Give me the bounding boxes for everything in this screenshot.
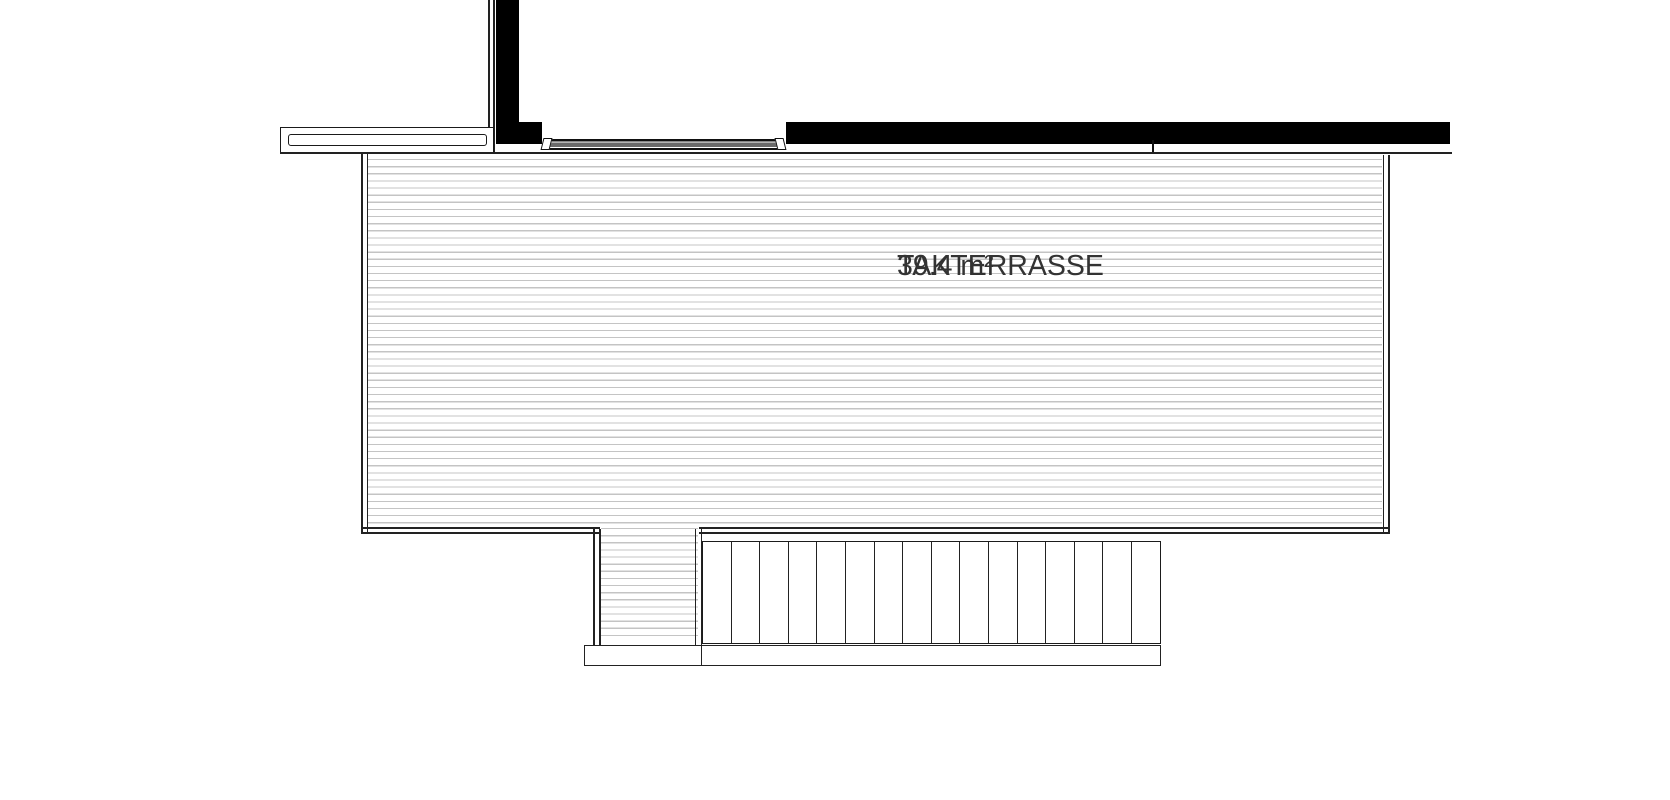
terrace-deck-hatch	[368, 159, 1382, 526]
stair-tread	[903, 542, 932, 643]
terrace-right-edge-line	[1388, 155, 1390, 533]
walkway-strip-edge-line	[695, 529, 697, 646]
exterior-wall-top	[786, 122, 1450, 144]
room-area-label: 39.4 m²	[897, 250, 994, 283]
stair-tread	[846, 542, 875, 643]
exterior-wall-corner	[518, 122, 542, 144]
stair-tread	[760, 542, 789, 643]
stair-tread	[1103, 542, 1132, 643]
floor-plan-canvas: TAKTERRASSE 39.4 m²	[0, 0, 1670, 800]
terrace-left-edge-line	[361, 153, 363, 533]
stair-tread	[932, 542, 961, 643]
terrace-top-edge-line	[280, 152, 1452, 155]
terrace-bottom-edge-line	[699, 532, 1390, 534]
stair-tread	[1075, 542, 1104, 643]
sliding-door-track	[549, 139, 784, 150]
stair-tread	[703, 542, 732, 643]
stair-tread	[875, 542, 904, 643]
stair-tread	[732, 542, 761, 643]
parapet-railing-panel	[288, 134, 487, 146]
terrace-bottom-edge-line	[699, 527, 1390, 529]
wall-joint-tick	[1152, 140, 1154, 152]
exterior-wall-vertical	[496, 0, 519, 144]
stair-tread	[817, 542, 846, 643]
stair-tread	[989, 542, 1018, 643]
stair-tread	[1046, 542, 1075, 643]
stair-tread	[789, 542, 818, 643]
landing-slab	[584, 645, 1161, 667]
terrace-right-edge-line	[1383, 155, 1385, 533]
walkway-strip-edge-line	[593, 529, 595, 646]
stair-tread	[1018, 542, 1047, 643]
walkway-strip-hatch	[601, 528, 698, 641]
walkway-strip-edge-line	[701, 529, 703, 667]
stair-tread	[1132, 542, 1160, 643]
terrace-left-edge-line	[367, 153, 369, 533]
walkway-strip-edge-line	[599, 529, 601, 646]
terrace-bottom-edge-line	[361, 527, 600, 529]
stair-tread	[960, 542, 989, 643]
stair-flight	[702, 541, 1161, 644]
terrace-bottom-edge-line	[361, 532, 600, 534]
